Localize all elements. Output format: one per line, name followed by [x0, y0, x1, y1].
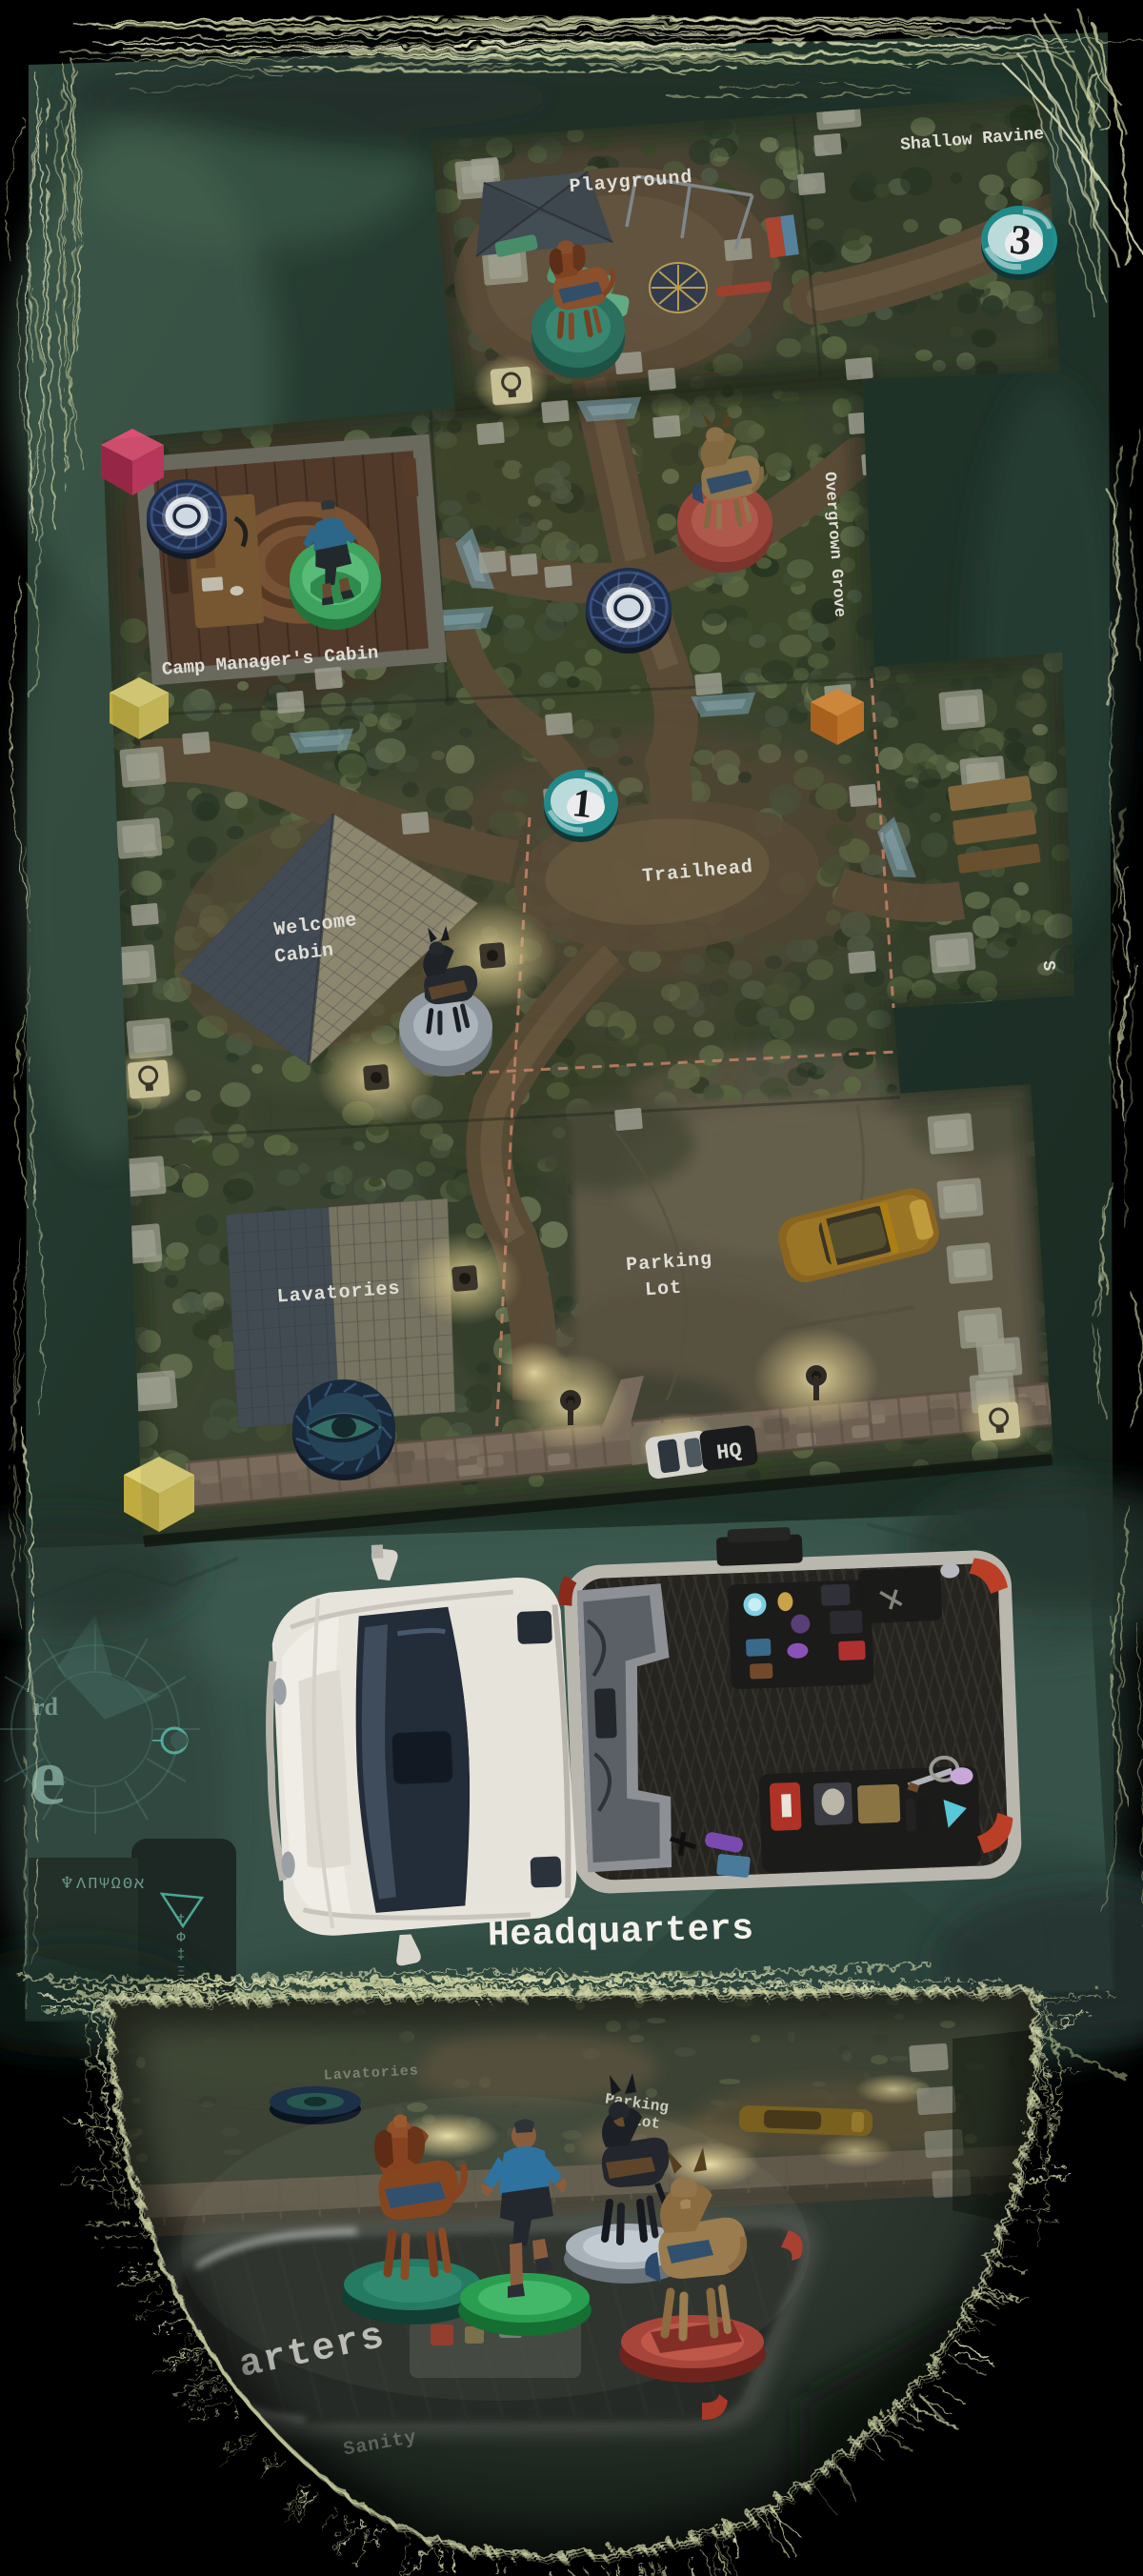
svg-text:rd: rd — [33, 1693, 59, 1721]
svg-text:Headquarters: Headquarters — [487, 1908, 754, 1956]
svg-text:♆ΛПΨΩΘא: ♆ΛПΨΩΘא — [60, 1876, 146, 1894]
svg-text:‡: ‡ — [176, 1947, 185, 1963]
svg-text:Φ: Φ — [176, 1930, 185, 1946]
